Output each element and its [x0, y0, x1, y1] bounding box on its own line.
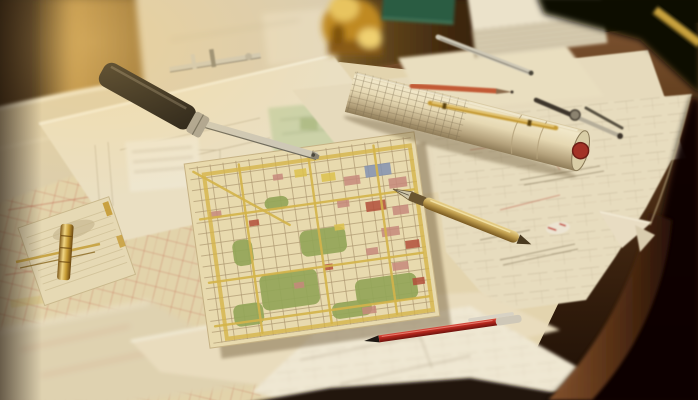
red-pencil-graphite [511, 91, 514, 94]
desk-scene: Warmly lit wooden drafting desk covered … [0, 0, 698, 400]
photo-stage: Warmly lit wooden drafting desk covered … [0, 0, 698, 400]
compass-pivot [570, 110, 580, 120]
brass-instrument [322, 0, 382, 55]
instrument-shade [331, 24, 345, 44]
instrument-glint [358, 28, 382, 48]
window-glow-overlay [0, 0, 330, 210]
brass-pen-band [444, 103, 445, 109]
silver-pencil-tip [529, 71, 534, 76]
brass-pen-band [529, 120, 530, 126]
left-vignette [0, 0, 42, 400]
compass-point [617, 133, 623, 139]
